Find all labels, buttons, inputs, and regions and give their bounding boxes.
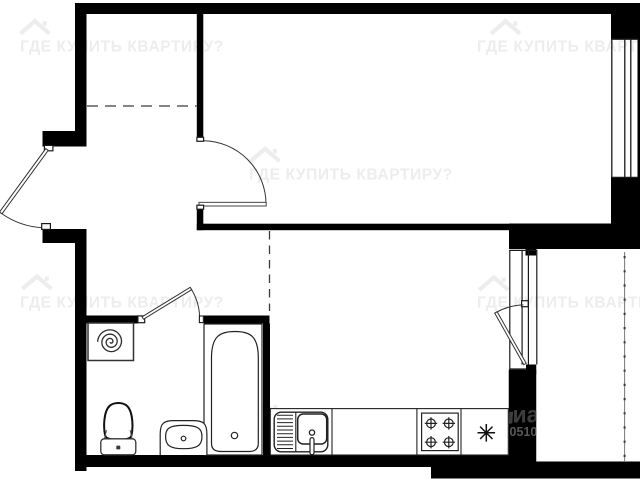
svg-text:ГДЕ КУПИТЬ КВАРТИРУ?: ГДЕ КУПИТЬ КВАРТИРУ? (20, 39, 224, 56)
svg-text:ГДЕ КУПИТЬ КВАРТИРУ?: ГДЕ КУПИТЬ КВАРТИРУ? (477, 295, 640, 312)
svg-text:05101: 05101 (510, 425, 545, 439)
svg-text:ГДЕ КУПИТЬ КВАРТИРУ?: ГДЕ КУПИТЬ КВАРТИРУ? (249, 167, 453, 184)
svg-text:ГДЕ КУПИТЬ КВАРТИРУ?: ГДЕ КУПИТЬ КВАРТИРУ? (477, 39, 640, 56)
svg-text:иа: иа (513, 402, 540, 428)
svg-text:ГДЕ КУПИТЬ КВАРТИРУ?: ГДЕ КУПИТЬ КВАРТИРУ? (20, 295, 224, 312)
